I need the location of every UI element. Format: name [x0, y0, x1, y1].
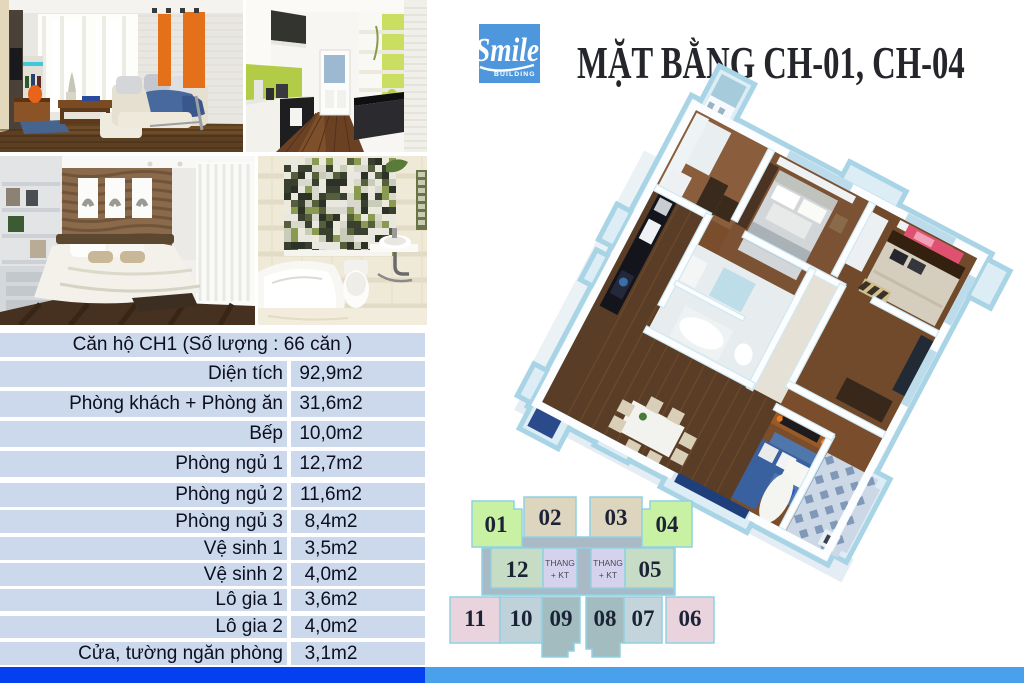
- svg-text:+ KT: + KT: [551, 570, 569, 580]
- svg-text:01: 01: [485, 512, 508, 537]
- svg-text:09: 09: [550, 606, 573, 631]
- svg-text:02: 02: [539, 505, 562, 530]
- svg-text:THANG: THANG: [593, 558, 623, 568]
- svg-text:07: 07: [632, 606, 655, 631]
- svg-text:10: 10: [510, 606, 533, 631]
- svg-text:+ KT: + KT: [599, 570, 617, 580]
- svg-text:11: 11: [464, 606, 486, 631]
- svg-text:03: 03: [605, 505, 628, 530]
- svg-text:04: 04: [656, 512, 680, 537]
- svg-text:THANG: THANG: [545, 558, 575, 568]
- svg-text:06: 06: [679, 606, 702, 631]
- svg-text:08: 08: [594, 606, 617, 631]
- svg-text:05: 05: [639, 557, 662, 582]
- svg-text:12: 12: [506, 557, 529, 582]
